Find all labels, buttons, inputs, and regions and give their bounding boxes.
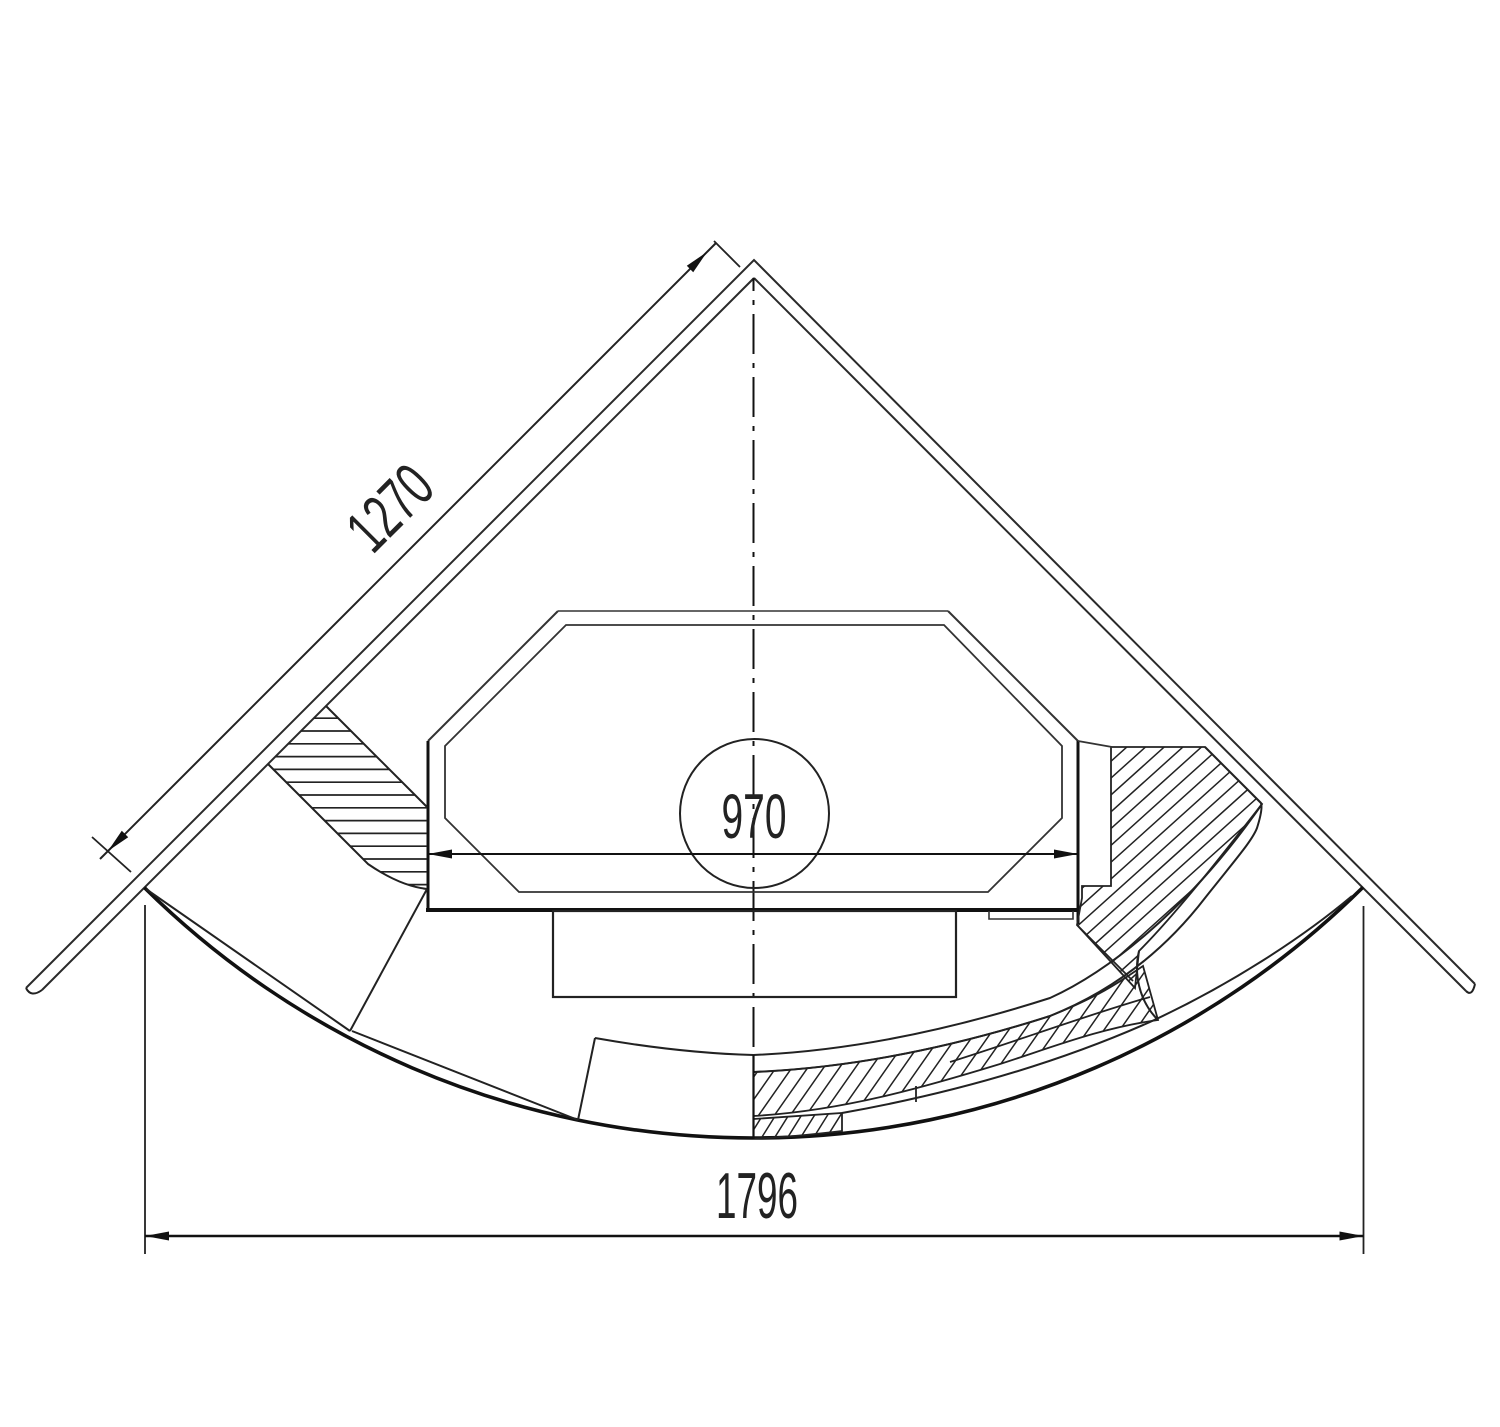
svg-text:1796: 1796 xyxy=(716,1159,798,1232)
svg-text:970: 970 xyxy=(722,782,787,852)
